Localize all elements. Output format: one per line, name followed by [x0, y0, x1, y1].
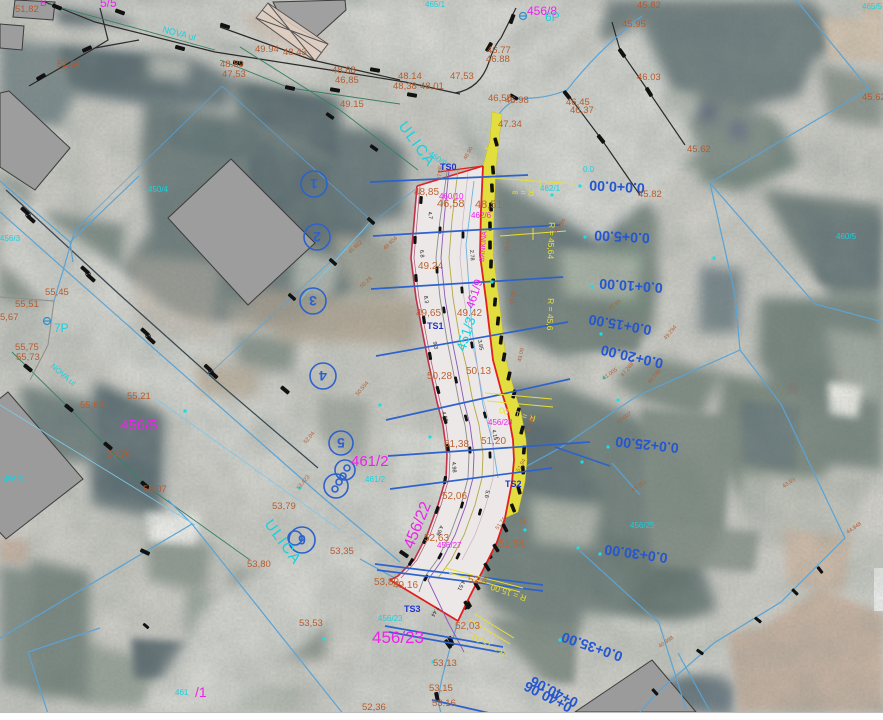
svg-text:460/5: 460/5: [836, 232, 857, 241]
svg-text:5,67: 5,67: [0, 312, 19, 323]
svg-text:1: 1: [310, 176, 318, 192]
svg-text:2.78: 2.78: [468, 250, 475, 261]
svg-text:6: 6: [298, 532, 306, 548]
svg-text:46,37: 46,37: [570, 105, 594, 116]
svg-text:51,38: 51,38: [444, 439, 469, 450]
svg-text:45.95: 45.95: [622, 19, 646, 30]
svg-text:48.43: 48.43: [283, 47, 307, 58]
svg-text:51,82: 51,82: [15, 4, 39, 15]
svg-text:52,36: 52,36: [362, 702, 386, 713]
svg-text:2: 2: [313, 229, 321, 245]
svg-text:456/28: 456/28: [488, 418, 513, 427]
svg-text:48,38: 48,38: [393, 81, 417, 92]
svg-text:456/23: 456/23: [378, 614, 403, 623]
svg-text:0.0: 0.0: [583, 165, 595, 174]
svg-text:49,16: 49,16: [393, 580, 418, 591]
svg-text:465/5: 465/5: [862, 2, 883, 11]
svg-text:461/2: 461/2: [365, 475, 386, 484]
svg-text:50,28: 50,28: [427, 371, 452, 382]
svg-text:46,85: 46,85: [335, 75, 359, 86]
svg-text:5: 5: [520, 516, 526, 527]
svg-text:50,13: 50,13: [466, 366, 491, 377]
svg-text:462/6: 462/6: [471, 211, 492, 220]
svg-text:46.88: 46.88: [486, 54, 510, 65]
svg-text:0.0+0.00: 0.0+0.00: [589, 177, 645, 196]
svg-text:462/1: 462/1: [540, 184, 561, 193]
svg-text:48,01: 48,01: [420, 81, 444, 92]
svg-text:55,45: 55,45: [45, 287, 69, 298]
svg-text:54,76: 54,76: [107, 449, 131, 460]
svg-text:53,79: 53,79: [272, 501, 296, 512]
svg-text:456/27: 456/27: [437, 541, 462, 550]
svg-text:47.34: 47.34: [498, 119, 522, 130]
svg-text:456/5: 456/5: [120, 417, 158, 434]
svg-text:/1: /1: [195, 684, 207, 700]
svg-text:TS3: TS3: [404, 604, 421, 614]
svg-text:49.24: 49.24: [418, 261, 443, 272]
svg-text:TS1: TS1: [427, 321, 444, 331]
svg-text:53,13: 53,13: [433, 658, 457, 669]
svg-text:52,06: 52,06: [442, 491, 467, 502]
svg-text:45.82: 45.82: [638, 189, 662, 200]
svg-text:465/1: 465/1: [425, 0, 446, 9]
svg-text:3: 3: [309, 293, 317, 309]
svg-text:53,35: 53,35: [330, 546, 354, 557]
svg-text:47,53: 47,53: [222, 69, 246, 80]
svg-text:461: 461: [175, 688, 189, 697]
svg-text:46.03: 46.03: [637, 72, 661, 83]
svg-text:46,58: 46,58: [488, 93, 512, 104]
svg-text:55,60: 55,60: [80, 400, 104, 411]
svg-text:55,51: 55,51: [15, 299, 39, 310]
svg-text:4.98: 4.98: [450, 462, 457, 473]
svg-text:45.62: 45.62: [687, 144, 711, 155]
svg-text:55,07: 55,07: [143, 484, 167, 495]
svg-text:53.16: 53.16: [432, 698, 456, 709]
svg-text:456/25: 456/25: [630, 521, 655, 530]
svg-text:8.3: 8.3: [422, 295, 429, 303]
svg-text:R = 45,6: R = 45,6: [545, 298, 556, 331]
svg-text:4: 4: [319, 368, 327, 384]
svg-text:TS2: TS2: [505, 479, 522, 489]
svg-text:55,73: 55,73: [16, 352, 40, 363]
svg-text:48,51: 48,51: [475, 199, 503, 211]
svg-text:450/4: 450/4: [148, 185, 169, 194]
svg-text:461/2: 461/2: [351, 453, 389, 470]
svg-text:47.88: 47.88: [437, 166, 444, 180]
svg-text:5/5: 5/5: [100, 0, 117, 10]
svg-text:53,53: 53,53: [299, 618, 323, 629]
svg-text:5: 5: [337, 435, 345, 451]
svg-text:52,03: 52,03: [455, 621, 480, 632]
svg-text:456/3: 456/3: [3, 475, 24, 484]
svg-text:45.62: 45.62: [862, 92, 883, 103]
svg-text:53,15: 53,15: [429, 683, 453, 694]
svg-text:52,4: 52,4: [468, 575, 488, 586]
svg-text:48,85: 48,85: [414, 187, 439, 198]
svg-text:47,53: 47,53: [450, 71, 474, 82]
svg-text:7P: 7P: [54, 321, 69, 335]
svg-text:51,54: 51,54: [499, 539, 524, 550]
svg-text:B: B: [40, 0, 47, 9]
svg-text:45.82: 45.82: [637, 0, 661, 11]
svg-text:49,65: 49,65: [416, 308, 441, 319]
svg-text:55,21: 55,21: [127, 391, 151, 402]
svg-text:6.8: 6.8: [418, 250, 425, 258]
svg-text:51,64: 51,64: [57, 59, 81, 70]
svg-text:6P: 6P: [545, 10, 560, 24]
svg-text:53,80: 53,80: [247, 559, 271, 570]
svg-text:460/10: 460/10: [439, 192, 464, 201]
svg-text:0.0+5.00: 0.0+5.00: [594, 227, 650, 246]
svg-text:49.94: 49.94: [255, 44, 279, 55]
svg-text:49.15: 49.15: [340, 99, 364, 110]
svg-text:456/3: 456/3: [0, 234, 21, 243]
svg-text:R = ∞: R = ∞: [512, 188, 534, 198]
svg-text:456/23: 456/23: [372, 628, 424, 647]
